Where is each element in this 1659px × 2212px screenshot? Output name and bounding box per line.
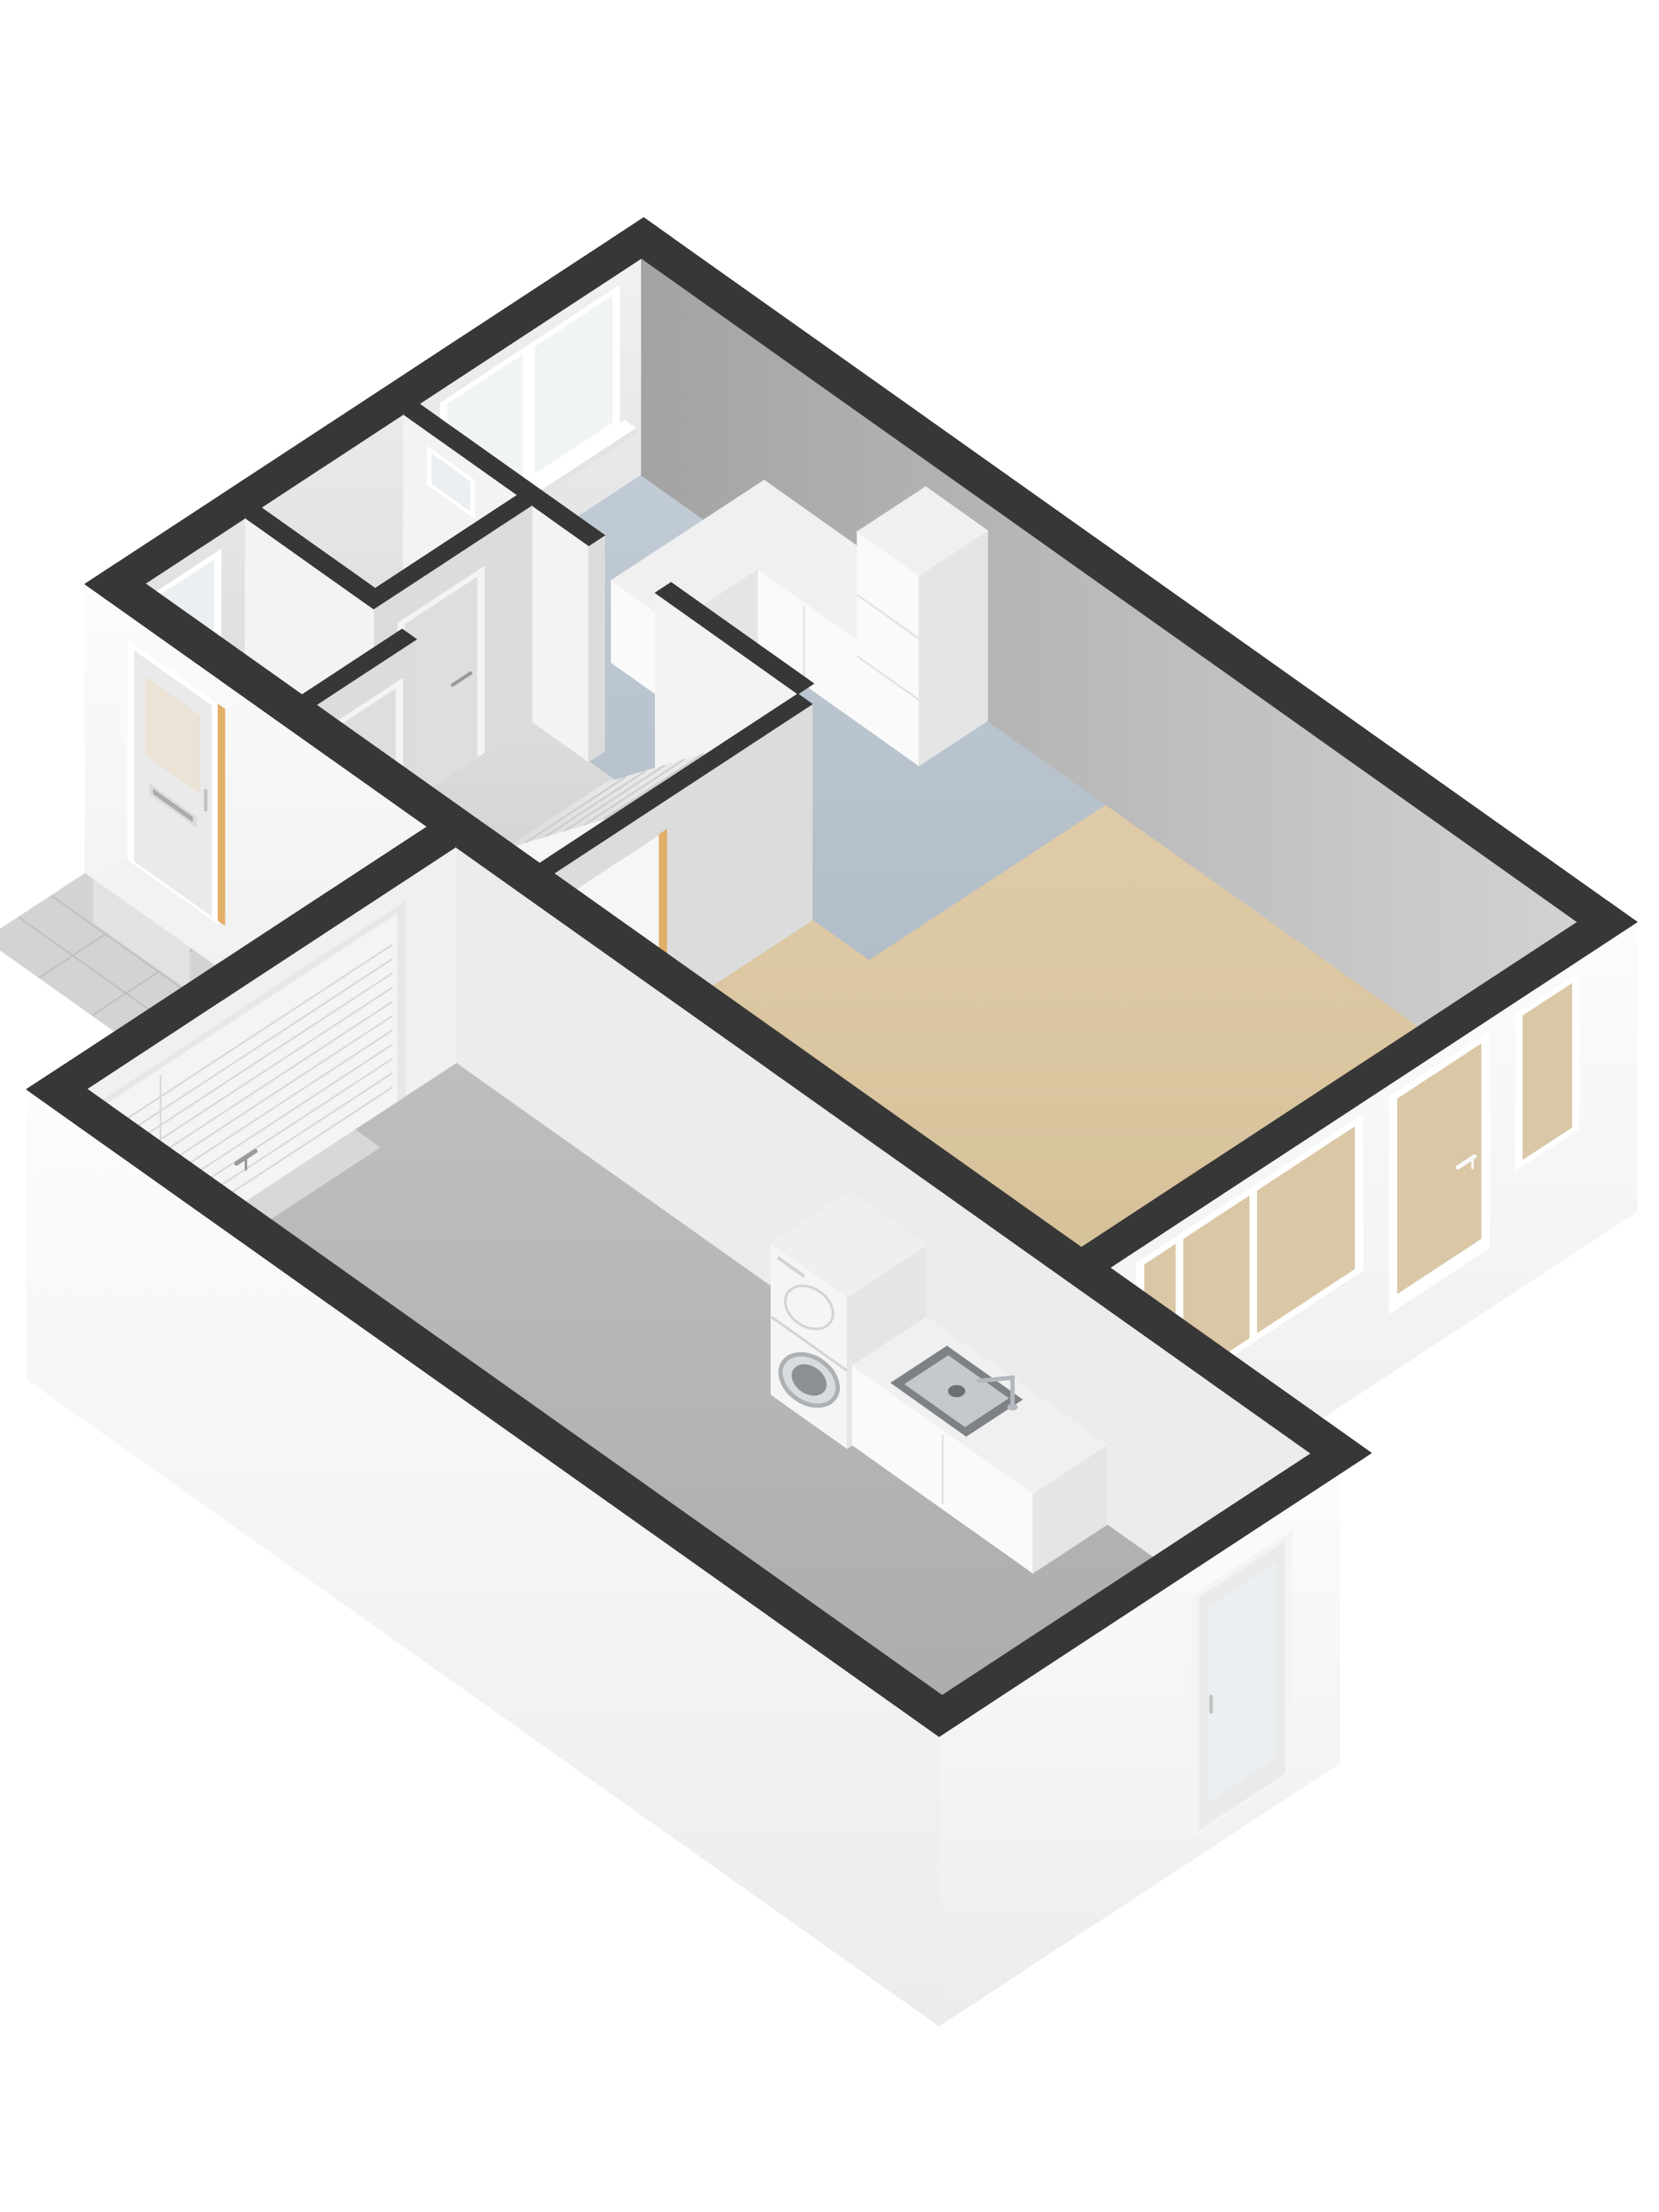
front-door-open-jamb	[218, 704, 225, 925]
sink-faucet-base	[1007, 1403, 1018, 1410]
floorplan-canvas	[0, 0, 1659, 2212]
kitchen-doorway-jamb	[588, 536, 604, 762]
floorplan-3d-svg	[0, 0, 1659, 2212]
sink-drain	[948, 1385, 965, 1397]
